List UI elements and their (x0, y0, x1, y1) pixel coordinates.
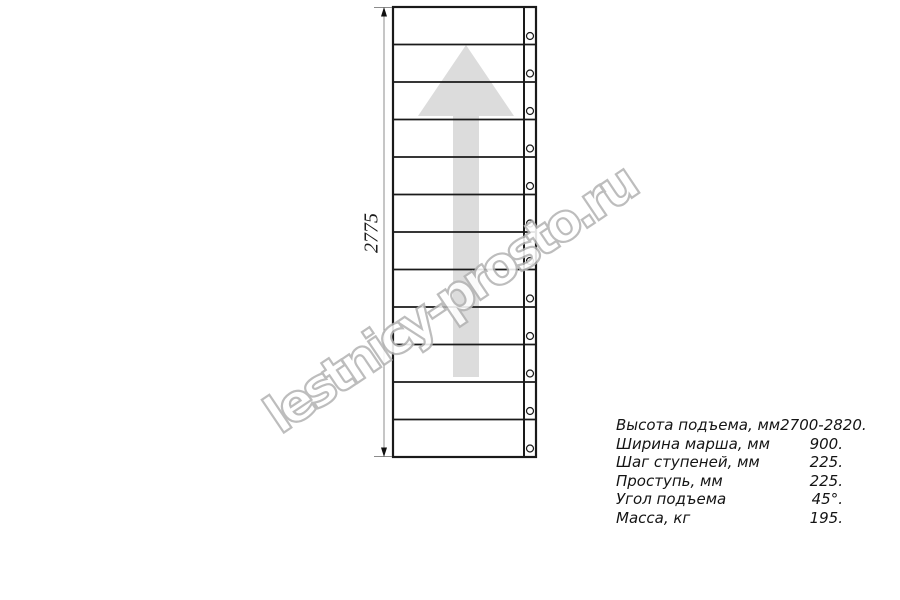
spec-label: Проступь, мм (616, 472, 723, 491)
spec-row-height: Высота подъема, мм 2700-2820. (616, 416, 843, 435)
baluster-circle (527, 445, 534, 452)
dimension-arrowhead-bottom-icon (381, 448, 387, 458)
spec-value: 225. (810, 472, 843, 491)
spec-label: Масса, кг (616, 509, 690, 528)
page-canvas: 2775 lestnicy-prosto.ru Высота подъема, … (0, 0, 900, 600)
spec-row-step-pitch: Шаг ступеней, мм 225. (616, 453, 843, 472)
baluster-circle (527, 145, 534, 152)
baluster-circle (527, 70, 534, 77)
spec-value: 225. (810, 453, 843, 472)
spec-row-tread: Проступь, мм 225. (616, 472, 843, 491)
spec-label: Ширина марша, мм (616, 435, 770, 454)
baluster-circles (527, 33, 534, 453)
baluster-circle (527, 333, 534, 340)
spec-value: 2700-2820. (780, 416, 867, 435)
spec-label: Высота подъема, мм (616, 416, 780, 435)
baluster-circle (527, 408, 534, 415)
baluster-circle (527, 295, 534, 302)
baluster-circle (527, 220, 534, 227)
spec-label: Шаг ступеней, мм (616, 453, 760, 472)
spec-value: 900. (810, 435, 843, 454)
dimension-label: 2775 (361, 213, 383, 253)
baluster-circle (527, 258, 534, 265)
up-direction-arrow (418, 45, 514, 377)
spec-row-flight-width: Ширина марша, мм 900. (616, 435, 843, 454)
baluster-circle (527, 183, 534, 190)
dimension-arrowhead-top-icon (381, 7, 387, 17)
spec-value: 195. (810, 509, 843, 528)
specs-table: Высота подъема, мм 2700-2820. Ширина мар… (616, 416, 843, 528)
spec-row-mass: Масса, кг 195. (616, 509, 843, 528)
baluster-circle (527, 108, 534, 115)
spec-row-angle: Угол подъема 45°. (616, 490, 843, 509)
spec-label: Угол подъема (616, 490, 726, 509)
baluster-circle (527, 33, 534, 40)
baluster-circle (527, 370, 534, 377)
spec-value: 45°. (812, 490, 843, 509)
